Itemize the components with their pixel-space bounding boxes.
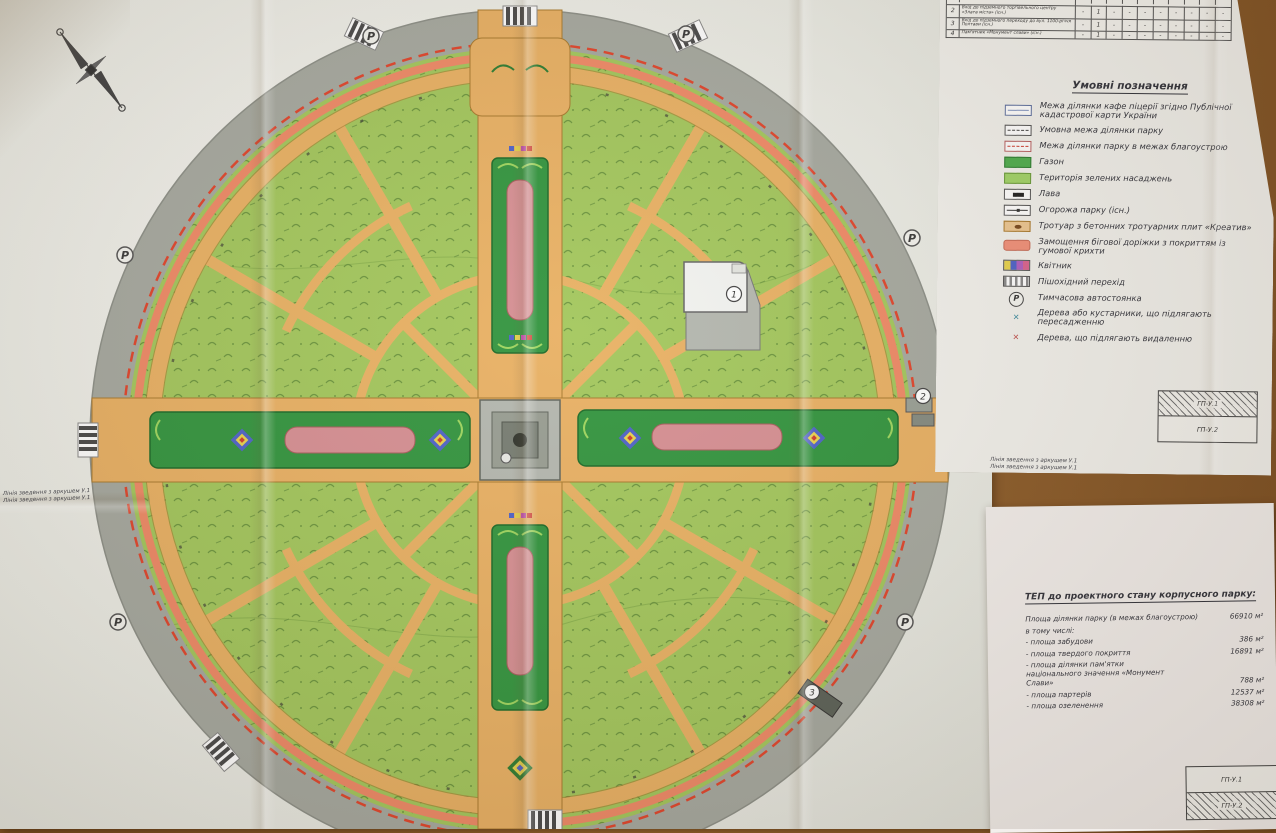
table-cell: -	[1184, 7, 1200, 20]
legend-item: Огорожа парку (існ.)	[1004, 204, 1254, 218]
table-cell: 1	[1091, 18, 1107, 31]
table-cell: -	[1138, 31, 1154, 39]
legend-label: Газон	[1039, 157, 1064, 167]
table-cell: -	[1184, 32, 1200, 40]
table-cell: -	[1200, 32, 1216, 40]
tep-row: - площа твердого покриття16891 м²	[1026, 646, 1264, 658]
table-cell: 1	[1091, 6, 1107, 19]
sheet-key-row: ГП-У.2	[1187, 792, 1276, 819]
table-cell	[1138, 0, 1154, 4]
running-track-symbol	[1003, 240, 1030, 251]
table-cell: -	[1122, 31, 1138, 39]
table-cell: -	[1169, 6, 1185, 19]
table-cell	[1200, 0, 1216, 5]
legend-label: Тимчасова автостоянка	[1038, 293, 1142, 303]
improvement-boundary-symbol	[1004, 140, 1031, 151]
legend-item: Межа ділянки кафе піцерії згідно Публічн…	[1005, 101, 1255, 122]
table-cell: -	[1138, 6, 1154, 19]
legend-label: Замощення бігової доріжки з покриттям із…	[1038, 237, 1253, 258]
lawn-symbol	[1004, 156, 1031, 167]
monument-plaza	[480, 400, 560, 480]
legend-item: Межа ділянки парку в межах благоустрою	[1004, 140, 1254, 154]
explication-table: 2 Вхід до підземного торгівельного центр…	[946, 0, 1232, 41]
bench-symbol	[1004, 188, 1031, 199]
table-cell: -	[1215, 7, 1231, 20]
legend-item: Газон	[1004, 156, 1254, 170]
cafe-building: 1	[684, 262, 760, 350]
table-cell: -	[1076, 31, 1092, 39]
table-cell: -	[1138, 19, 1154, 32]
legend-label: Умовна межа ділянки парку	[1040, 125, 1164, 136]
table-cell: -	[1122, 19, 1138, 32]
table-cell: Пам'ятник «Монумент слави» (існ.)	[960, 29, 1076, 38]
legend-label: Лава	[1039, 189, 1060, 199]
table-cell: -	[1200, 7, 1216, 20]
table-cell: -	[1076, 18, 1092, 31]
legend-item: Пішохідний перехід	[1003, 276, 1253, 290]
table-cell: 1	[1091, 31, 1107, 39]
photo-of-park-masterplan: { "table": { "rows": [ {"no":"2","name":…	[0, 0, 1276, 829]
legend-label: Пішохідний перехід	[1038, 277, 1125, 287]
table-cell: 3	[947, 17, 960, 30]
parking-icon: Р	[682, 28, 690, 41]
table-cell: Вхід до підземного торгівельного центру …	[960, 4, 1076, 18]
table-cell	[1122, 0, 1138, 4]
legend: Умовні позначення Межа ділянки кафе піце…	[1002, 79, 1255, 350]
table-cell: -	[1169, 19, 1185, 32]
park-boundary-symbol	[1005, 124, 1032, 135]
marker-3: 3	[809, 689, 815, 699]
table-cell: -	[1200, 19, 1216, 32]
parking-icon: Р	[121, 249, 129, 262]
tep-row: - площа ділянки пам'ятки національного з…	[1026, 657, 1264, 687]
table-cell	[1215, 0, 1231, 5]
legend-title: Умовні позначення	[1005, 79, 1255, 94]
greenery-symbol	[1004, 172, 1031, 183]
sheet-join-note-right: Лінія зведення з аркушем У.1 Лінія зведе…	[990, 457, 1120, 473]
table-cell: -	[1122, 6, 1138, 19]
table-cell	[1107, 0, 1123, 4]
sheet-key-top: ГП-У.1 ГП-У.2	[1157, 390, 1258, 443]
legend-item: Територія зелених насаджень	[1004, 172, 1254, 186]
legend-item: Лава	[1004, 188, 1254, 202]
cadastre-boundary-symbol	[1005, 104, 1032, 115]
legend-label: Дерева або кустарники, що підлягають пер…	[1038, 308, 1253, 329]
table-cell: -	[1107, 18, 1123, 31]
sheet-key-row: ГП-У.1	[1186, 766, 1276, 793]
tep-row: Площа ділянки парку (в межах благоустрою…	[1025, 611, 1263, 623]
table-cell: -	[1184, 19, 1200, 32]
legend-item: Умовна межа ділянки парку	[1005, 124, 1255, 138]
marker-2: 2	[920, 393, 926, 403]
parking-icon: Р	[367, 30, 375, 43]
crosswalk-symbol	[1003, 276, 1030, 287]
legend-item: ✕Дерева або кустарники, що підлягають пе…	[1003, 308, 1253, 329]
table-cell	[947, 0, 960, 2]
table-cell: 4	[947, 29, 960, 37]
legend-label: Тротуар з бетонних тротуарних плит «Креа…	[1039, 221, 1252, 233]
legend-label: Квітник	[1038, 261, 1072, 271]
legend-label: Огорожа парку (існ.)	[1039, 205, 1130, 215]
tep-row: - площа партерів12537 м²	[1026, 687, 1264, 699]
tep-row: - площа забудови386 м²	[1026, 634, 1264, 646]
marker-1: 1	[731, 291, 737, 301]
fence-symbol	[1004, 204, 1031, 215]
table-cell	[1091, 0, 1107, 4]
table-cell: -	[1169, 32, 1185, 40]
table-cell: -	[1107, 31, 1123, 39]
table-cell: -	[1215, 20, 1231, 33]
tep-row: - площа озеленення38308 м²	[1026, 698, 1264, 710]
parking-icon: Р	[901, 616, 909, 629]
remove-tree-symbol: ✕	[1002, 331, 1029, 342]
legend-item: Замощення бігової доріжки з покриттям із…	[1003, 236, 1253, 257]
table-cell: -	[1076, 5, 1092, 18]
legend-sheet: 2 Вхід до підземного торгівельного центр…	[935, 0, 1276, 475]
legend-item: Тротуар з бетонних тротуарних плит «Креа…	[1004, 220, 1254, 234]
sidewalk-symbol	[1004, 220, 1031, 231]
park-plan-drawing: 1 2 3 Р Р Р Р Р Р	[0, 0, 992, 829]
transplant-tree-symbol: ✕	[1003, 312, 1030, 323]
flowerbed-symbol	[1003, 260, 1030, 271]
legend-item: Квітник	[1003, 260, 1253, 274]
tep-block: ТЕП до проектного стану корпусного парку…	[1025, 589, 1265, 713]
legend-label: Територія зелених насаджень	[1039, 173, 1172, 184]
table-cell	[1184, 0, 1200, 5]
legend-label: Межа ділянки парку в межах благоустрою	[1039, 141, 1227, 152]
table-cell: -	[1153, 6, 1169, 19]
legend-label: Дерева, що підлягають видаленню	[1037, 333, 1192, 344]
table-cell: -	[1107, 6, 1123, 19]
plan-sheet: 1 2 3 Р Р Р Р Р Р	[0, 0, 992, 829]
sheet-key-row: ГП-У.2	[1158, 416, 1256, 442]
sheet-key-row: ГП-У.1	[1159, 391, 1257, 417]
tep-row: в тому числі:	[1025, 623, 1263, 635]
sheet-key-bottom: ГП-У.1 ГП-У.2	[1185, 765, 1276, 820]
table-cell: -	[1153, 19, 1169, 32]
legend-label: Межа ділянки кафе піцерії згідно Публічн…	[1040, 101, 1255, 122]
table-cell: -	[1215, 32, 1231, 40]
parking-icon: Р	[114, 616, 122, 629]
table-cell	[1153, 0, 1169, 4]
parking-symbol: Р	[1003, 292, 1030, 303]
north-compass-icon	[57, 29, 125, 111]
table-cell: -	[1153, 31, 1169, 39]
table-cell: Вхід до підземного переходу до вул. 1100…	[960, 17, 1076, 31]
table-cell: 2	[947, 4, 960, 17]
legend-item: РТимчасова автостоянка	[1003, 292, 1253, 306]
table-cell	[1076, 0, 1092, 4]
parking-icon: Р	[908, 232, 916, 245]
tep-sheet: ТЕП до проектного стану корпусного парку…	[986, 503, 1276, 833]
legend-item: ✕Дерева, що підлягають видаленню	[1002, 331, 1252, 345]
tep-title: ТЕП до проектного стану корпусного парку…	[1025, 589, 1263, 602]
table-cell	[1169, 0, 1185, 5]
